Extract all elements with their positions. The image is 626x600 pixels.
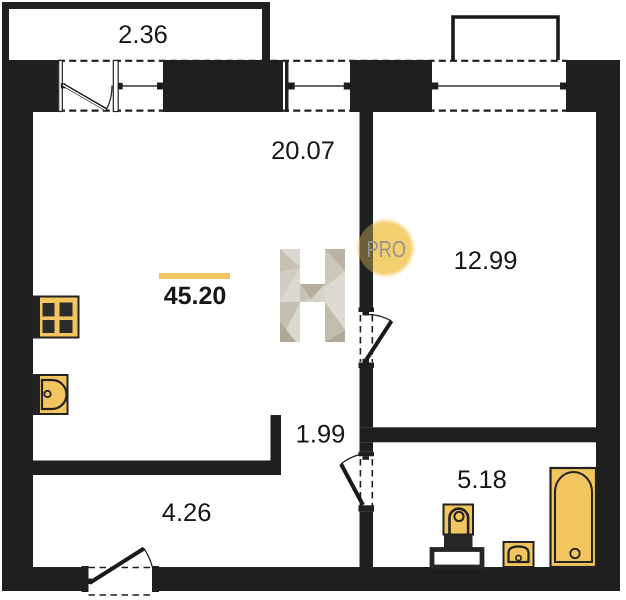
svg-text:45.20: 45.20 xyxy=(164,282,227,310)
svg-text:2.36: 2.36 xyxy=(118,21,168,49)
svg-text:5.18: 5.18 xyxy=(457,466,507,494)
svg-text:4.26: 4.26 xyxy=(162,499,212,527)
svg-text:12.99: 12.99 xyxy=(454,247,518,275)
svg-text:1.99: 1.99 xyxy=(296,421,346,449)
svg-text:PRO: PRO xyxy=(367,236,407,262)
svg-text:20.07: 20.07 xyxy=(271,137,335,165)
